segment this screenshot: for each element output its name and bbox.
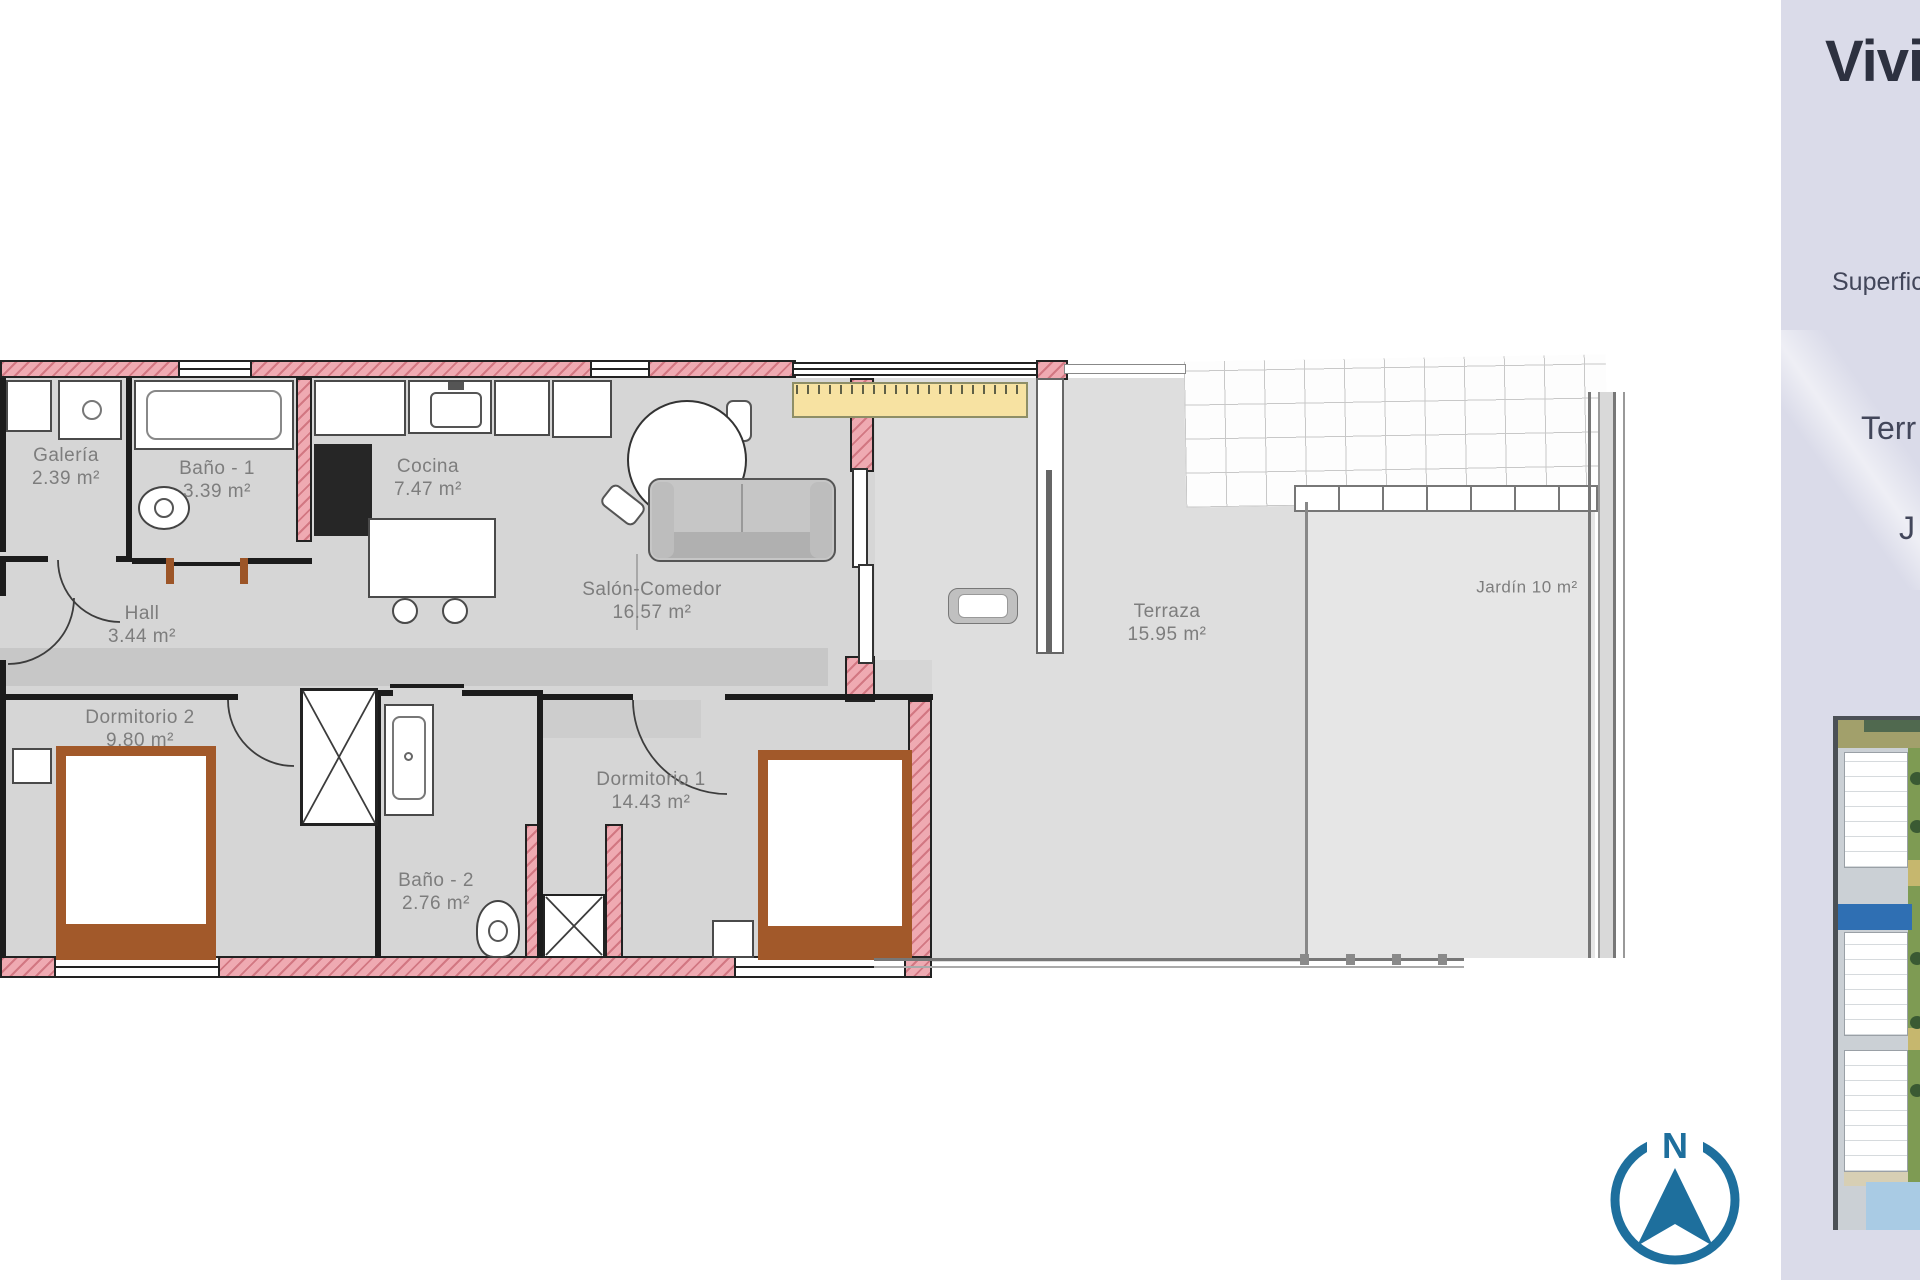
room-area: 14.43 m² [596,791,705,814]
door-arc-entry [8,598,74,664]
room-area: 2.76 m² [398,892,474,915]
floorplan-page: Galería 2.39 m² Baño - 1 3.39 m² Cocina … [0,0,1920,1280]
siteplan-building-1 [1844,752,1908,868]
siteplan-tree-1 [1910,772,1920,785]
siteplan-path-2 [1908,1028,1920,1050]
siteplan-building-3 [1844,1050,1908,1172]
panel-superficie-label: Superfic [1832,268,1920,297]
room-label-dorm2: Dormitorio 2 9.80 m² [85,706,194,752]
room-label-terraza: Terraza 15.95 m² [1128,600,1207,646]
room-label-galeria: Galería 2.39 m² [32,444,100,490]
siteplan-path-1 [1908,860,1920,886]
room-label-bano2: Baño - 2 2.76 m² [398,869,474,915]
panel-jardin-label: J [1899,510,1915,547]
room-label-hall: Hall 3.44 m² [108,602,176,648]
panel-terraza-label: Terr [1861,410,1916,447]
room-name: Hall [108,602,176,625]
room-name: Galería [32,444,100,467]
siteplan-hedge [1864,720,1920,732]
room-name: Baño - 1 [179,457,255,480]
room-name: Baño - 2 [398,869,474,892]
room-label-salon: Salón-Comedor 16.57 m² [582,578,722,624]
room-name: Terraza [1128,600,1207,623]
room-area: 15.95 m² [1128,623,1207,646]
panel-title: Vivie [1825,28,1920,95]
door-arc-dorm2 [228,700,294,766]
plan-linework [0,0,1920,1280]
siteplan-lawn-strip [1908,748,1920,1200]
siteplan-tree-3 [1910,952,1920,965]
room-label-cocina: Cocina 7.47 m² [394,455,462,501]
north-compass-icon: N [1595,1112,1755,1272]
room-name: Salón-Comedor [582,578,722,601]
room-label-bano1: Baño - 1 3.39 m² [179,457,255,503]
room-area: 16.57 m² [582,601,722,624]
info-panel: Vivie Superfic Terr J [1781,0,1920,1280]
room-name: Cocina [394,455,462,478]
room-area: 3.44 m² [108,625,176,648]
room-name: Dormitorio 1 [596,768,705,791]
siteplan-unit-highlight [1838,904,1912,930]
closet-x [303,691,375,823]
siteplan-tree-4 [1910,1016,1920,1029]
room-name: Jardín 10 m² [1476,576,1577,599]
site-plan-thumbnail [1833,716,1920,1230]
shaft-x [546,897,602,955]
room-area: 3.39 m² [179,480,255,503]
panel-light-stripe [1781,330,1920,590]
siteplan-pool [1866,1182,1920,1230]
room-area: 7.47 m² [394,478,462,501]
siteplan-building-2 [1844,932,1908,1036]
room-area: 9.80 m² [85,729,194,752]
room-name: Dormitorio 2 [85,706,194,729]
room-area: 2.39 m² [32,467,100,490]
siteplan-tree-5 [1910,1084,1920,1097]
room-label-dorm1: Dormitorio 1 14.43 m² [596,768,705,814]
siteplan-tree-2 [1910,820,1920,833]
compass-north-letter: N [1662,1125,1688,1166]
room-label-jardin: Jardín 10 m² [1476,576,1577,599]
